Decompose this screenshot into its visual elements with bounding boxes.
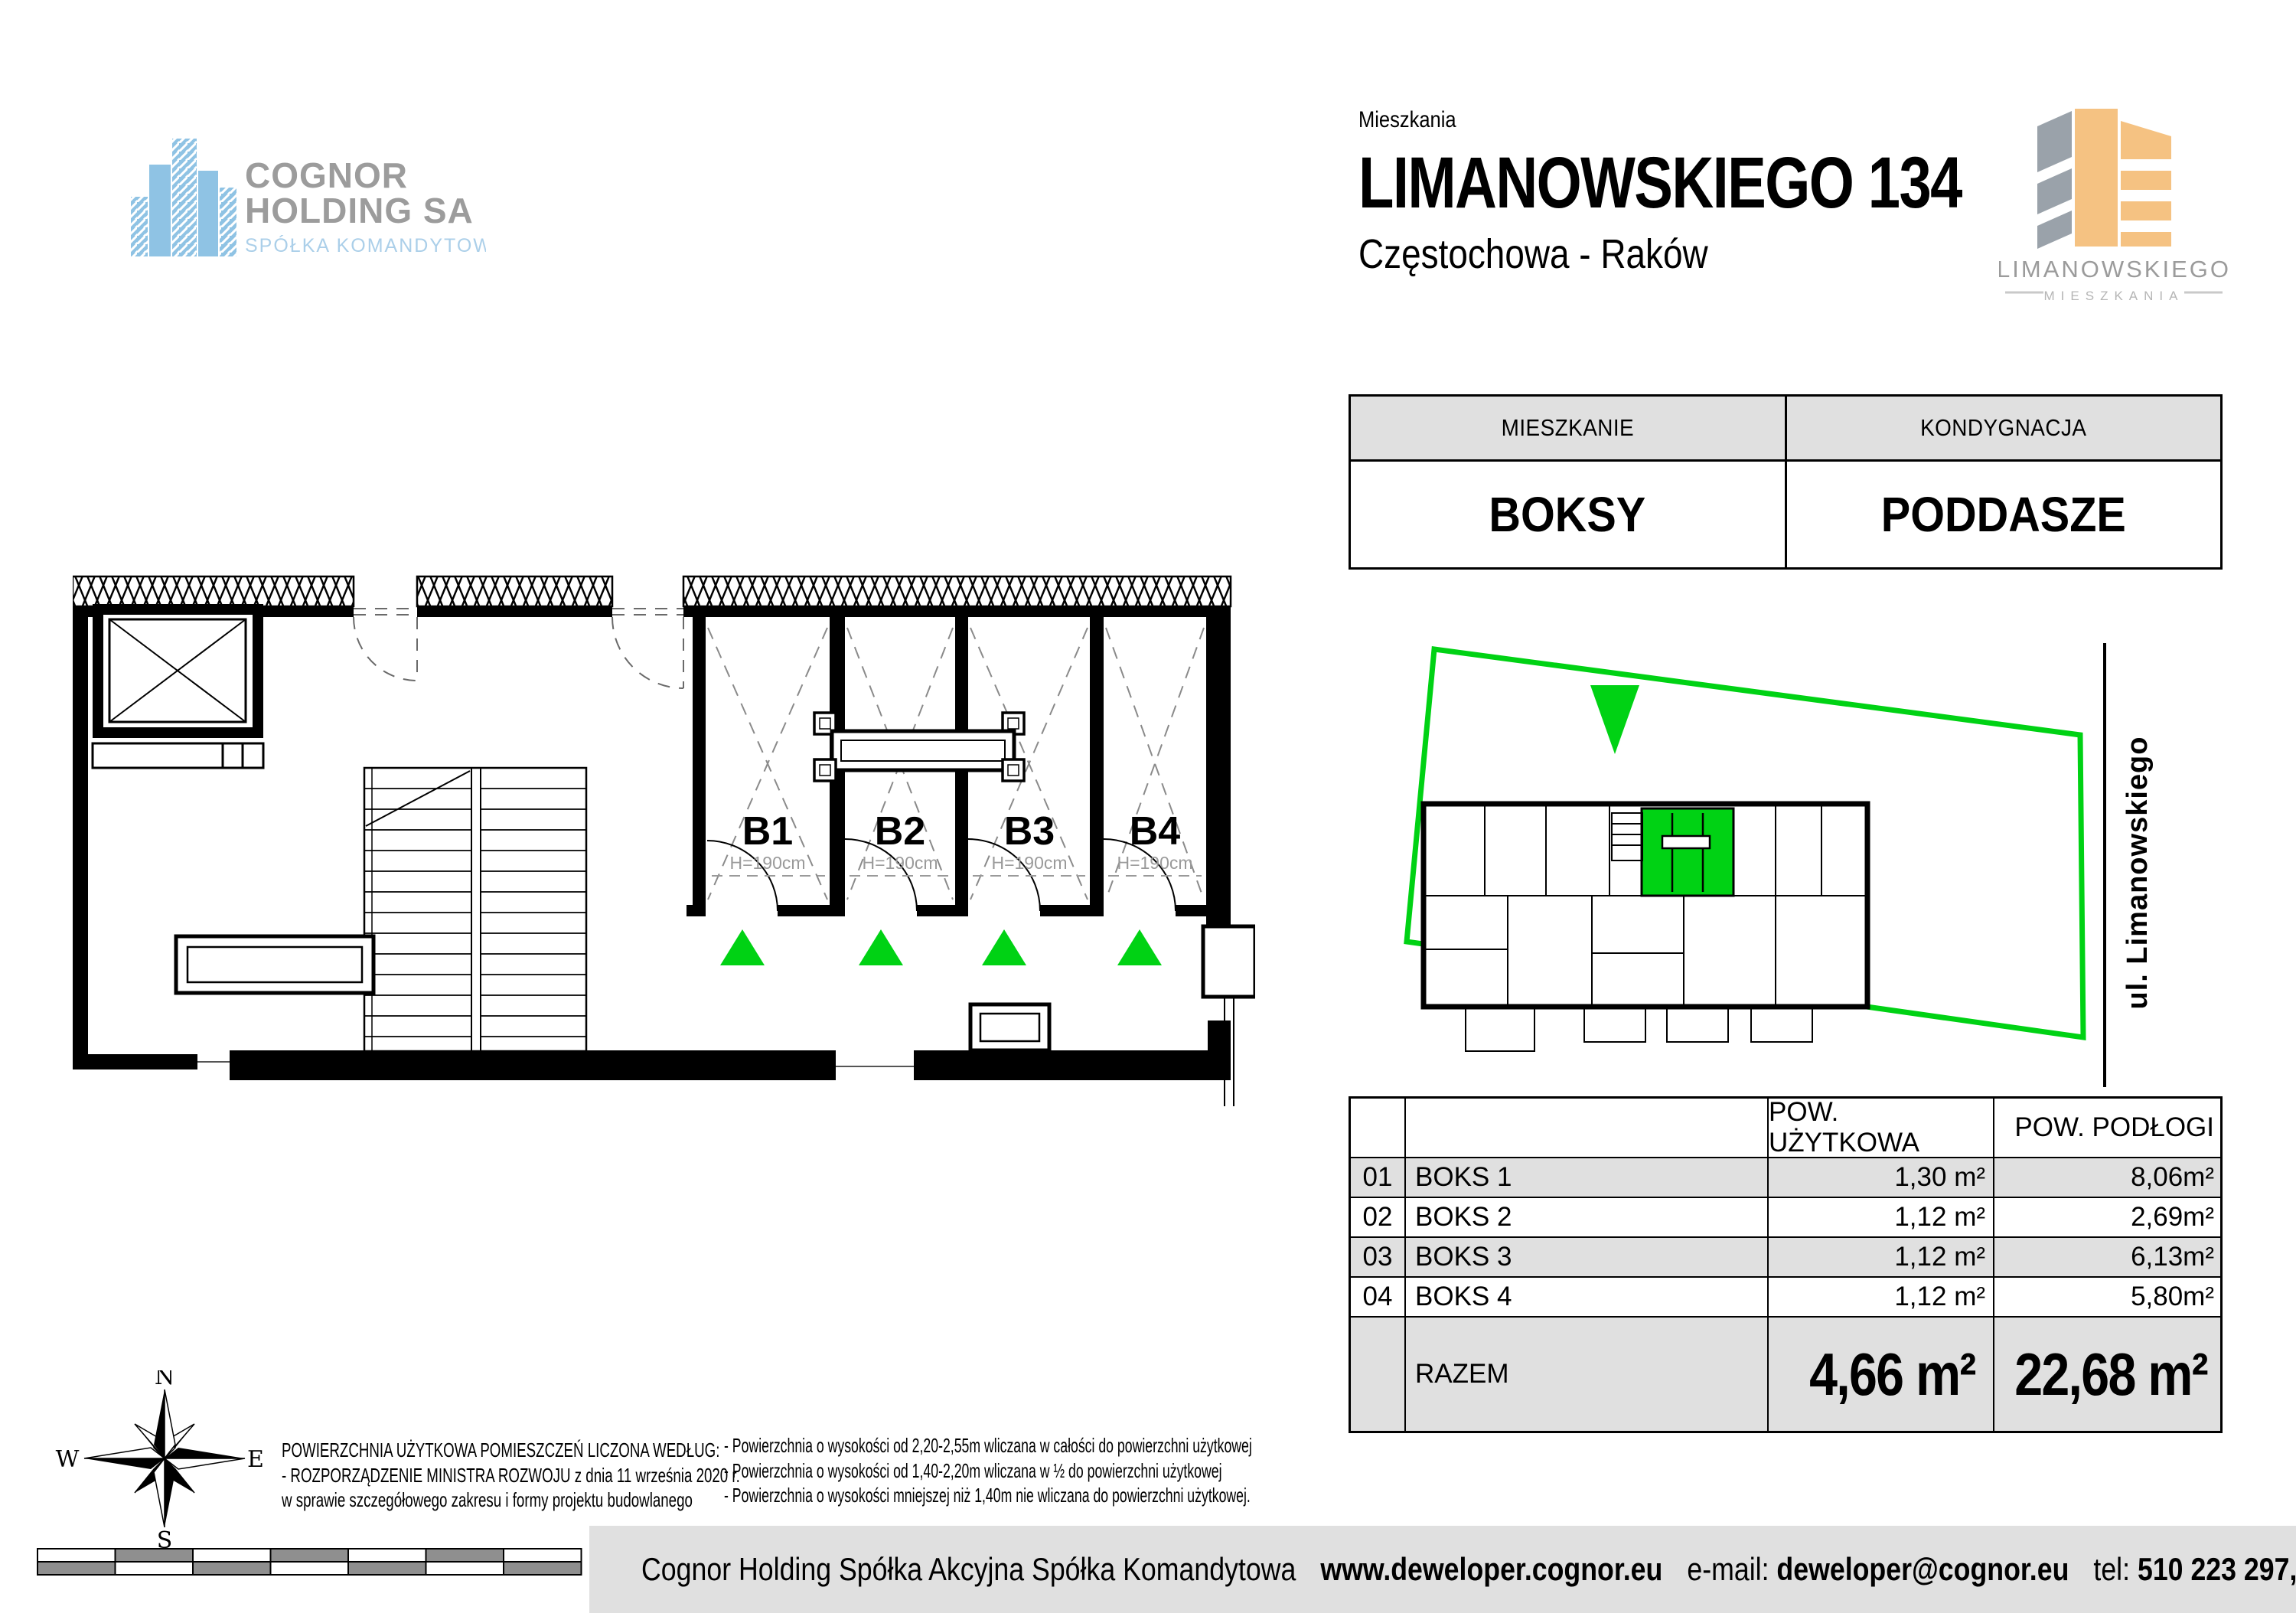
row-name: BOKS 1 xyxy=(1415,1162,1512,1193)
unit-highlight xyxy=(1642,808,1733,896)
table-row: 02 BOKS 2 1,12 m² 2,69m² xyxy=(1351,1198,2220,1238)
floor-name: PODDASZE xyxy=(1881,486,2126,543)
row-name: BOKS 2 xyxy=(1415,1202,1512,1233)
box1-height-label: H=190cm xyxy=(729,853,805,873)
developer-logo-line2: HOLDING SA xyxy=(245,191,474,230)
footer-contact-bar: Cognor Holding Spółka Akcyjna Spółka Kom… xyxy=(589,1526,2296,1613)
location-marker-icon xyxy=(1590,685,1639,754)
project-logo-subtitle: MIESZKANIA xyxy=(2044,289,2184,303)
developer-logo-line3: SPÓŁKA KOMANDYTOWA xyxy=(245,234,486,256)
box4-height-label: H=190cm xyxy=(1117,853,1192,873)
email-address: deweloper@cognor.eu xyxy=(1776,1551,2069,1587)
legal-line: - Powierzchnia o wysokości od 2,20-2,55m… xyxy=(724,1433,1252,1458)
elevator-lobby xyxy=(93,743,263,768)
row-usable: 1,30 m² xyxy=(1894,1162,1985,1193)
row-number: 04 xyxy=(1363,1282,1393,1312)
row-number: 03 xyxy=(1363,1242,1393,1272)
areas-table-header: POW. UŻYTKOWA POW. PODŁOGI xyxy=(1351,1099,2220,1158)
phone-label: tel: xyxy=(2093,1551,2130,1587)
col-usable-header: POW. UŻYTKOWA xyxy=(1769,1097,1985,1158)
page-subtitle: Częstochowa - Raków xyxy=(1358,230,1999,278)
project-logo-name: LIMANOWSKIEGO xyxy=(1999,256,2229,282)
box3-height-label: H=190cm xyxy=(991,853,1067,873)
scale-bar xyxy=(37,1548,583,1577)
row-name: BOKS 4 xyxy=(1415,1282,1512,1312)
unit-name: BOKSY xyxy=(1489,486,1646,543)
row-floor: 5,80m² xyxy=(2131,1282,2214,1312)
beam xyxy=(814,713,1024,781)
footer-contact-line: Cognor Holding Spółka Akcyjna Spółka Kom… xyxy=(589,1551,2296,1588)
legal-line: w sprawie szczegółowego zakresu i formy … xyxy=(282,1487,740,1513)
header-eyebrow: Mieszkania xyxy=(1358,107,1999,133)
row-number: 02 xyxy=(1363,1202,1393,1233)
row-number: 01 xyxy=(1363,1162,1393,1193)
table-row: 04 BOKS 4 1,12 m² 5,80m² xyxy=(1351,1278,2220,1318)
project-logo: LIMANOWSKIEGO MIESZKANIA xyxy=(1999,100,2229,308)
entrance-marker-icons xyxy=(720,929,1162,965)
chimney-block xyxy=(970,1004,1049,1050)
row-floor: 8,06m² xyxy=(2131,1162,2214,1193)
legal-note-right: - Powierzchnia o wysokości od 2,20-2,55m… xyxy=(724,1433,1252,1508)
row-name: BOKS 3 xyxy=(1415,1242,1512,1272)
legal-line: - Powierzchnia o wysokości mniejszej niż… xyxy=(724,1483,1252,1508)
phone-numbers: 510 223 297, 510 223 631 xyxy=(2138,1551,2296,1587)
row-usable: 1,12 m² xyxy=(1894,1202,1985,1233)
legal-line: - ROZPORZĄDZENIE MINISTRA ROZWOJU z dnia… xyxy=(282,1463,740,1488)
row-floor: 2,69m² xyxy=(2131,1202,2214,1233)
table-total-row: RAZEM 4,66 m² 22,68 m² xyxy=(1351,1318,2220,1431)
company-name: Cognor Holding Spółka Akcyjna Spółka Kom… xyxy=(641,1551,1296,1587)
entrance-marker-icon xyxy=(720,929,765,965)
buildings-icon xyxy=(131,139,236,256)
compass-star xyxy=(84,1390,245,1527)
total-floor: 22,68 m² xyxy=(2014,1340,2207,1409)
compass-north-label: N xyxy=(155,1370,174,1390)
areas-table: POW. UŻYTKOWA POW. PODŁOGI 01 BOKS 1 1,3… xyxy=(1349,1096,2223,1433)
row-usable: 1,12 m² xyxy=(1894,1282,1985,1312)
door-swing-dashed xyxy=(354,609,683,688)
box3-label: B3 xyxy=(1004,809,1055,854)
exterior-wall-insulation xyxy=(73,576,1231,606)
floor-plan: H=190cm H=190cm H=190cm H=190cm B1 B2 B3… xyxy=(73,570,1255,1122)
total-usable: 4,66 m² xyxy=(1809,1340,1975,1409)
row-usable: 1,12 m² xyxy=(1894,1242,1985,1272)
compass-east-label: E xyxy=(247,1446,264,1473)
staircase xyxy=(364,768,586,1051)
legal-line: POWIERZCHNIA UŻYTKOWA POMIESZCZEŃ LICZON… xyxy=(282,1438,740,1463)
website-link: www.deweloper.cognor.eu xyxy=(1320,1551,1662,1587)
unit-info-table: MIESZKANIE KONDYGNACJA BOKSY PODDASZE xyxy=(1349,394,2223,570)
building-icon xyxy=(2037,109,2171,249)
low-wall xyxy=(176,936,373,993)
entrance-marker-icon xyxy=(982,929,1026,965)
building-footprint xyxy=(1424,804,1867,1051)
entrance-marker-icon xyxy=(1117,929,1162,965)
compass-south-label: S xyxy=(157,1527,173,1550)
legal-line: - Powierzchnia o wysokości od 1,40-2,20m… xyxy=(724,1458,1252,1484)
table-row: 01 BOKS 1 1,30 m² 8,06m² xyxy=(1351,1158,2220,1198)
location-mini-plan: ul. Limanowskiego xyxy=(1393,643,2250,1102)
email-label: e-mail: xyxy=(1687,1551,1769,1587)
table-row: 03 BOKS 3 1,12 m² 6,13m² xyxy=(1351,1238,2220,1278)
developer-logo: COGNOR HOLDING SA SPÓŁKA KOMANDYTOWA xyxy=(103,126,486,276)
row-floor: 6,13m² xyxy=(2131,1242,2214,1272)
info-col1-header: MIESZKANIE xyxy=(1501,414,1633,442)
box2-height-label: H=190cm xyxy=(862,853,938,873)
box4-label: B4 xyxy=(1130,809,1181,854)
entrance-marker-icon xyxy=(859,929,903,965)
box1-label: B1 xyxy=(742,809,793,854)
total-label: RAZEM xyxy=(1415,1359,1509,1390)
legal-note-left: POWIERZCHNIA UŻYTKOWA POMIESZCZEŃ LICZON… xyxy=(282,1438,740,1513)
page-title: LIMANOWSKIEGO 134 xyxy=(1358,147,1962,220)
col-floor-header: POW. PODŁOGI xyxy=(2014,1112,2214,1143)
street-label: ul. Limanowskiego xyxy=(2122,736,2154,1010)
compass-west-label: W xyxy=(56,1446,80,1473)
info-col2-header: KONDYGNACJA xyxy=(1920,414,2086,442)
elevator-shaft xyxy=(98,609,258,733)
compass-rose-icon: N E S W xyxy=(54,1370,268,1550)
developer-logo-line1: COGNOR xyxy=(245,155,408,195)
box2-label: B2 xyxy=(875,809,925,854)
